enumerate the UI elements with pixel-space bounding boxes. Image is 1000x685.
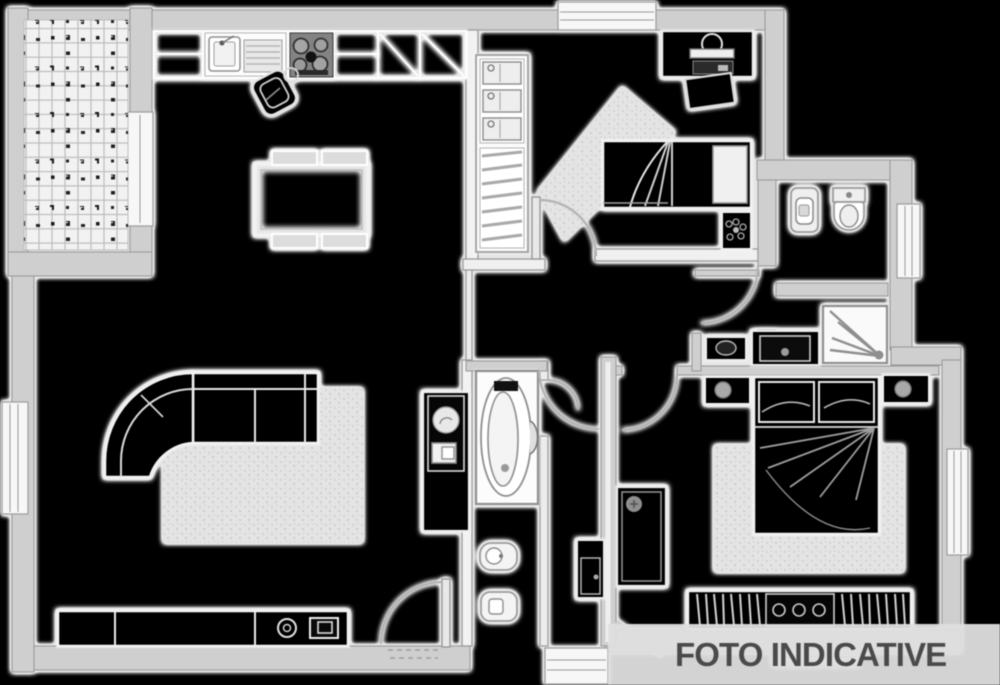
svg-text:FOTO INDICATIVE: FOTO INDICATIVE (675, 636, 946, 673)
